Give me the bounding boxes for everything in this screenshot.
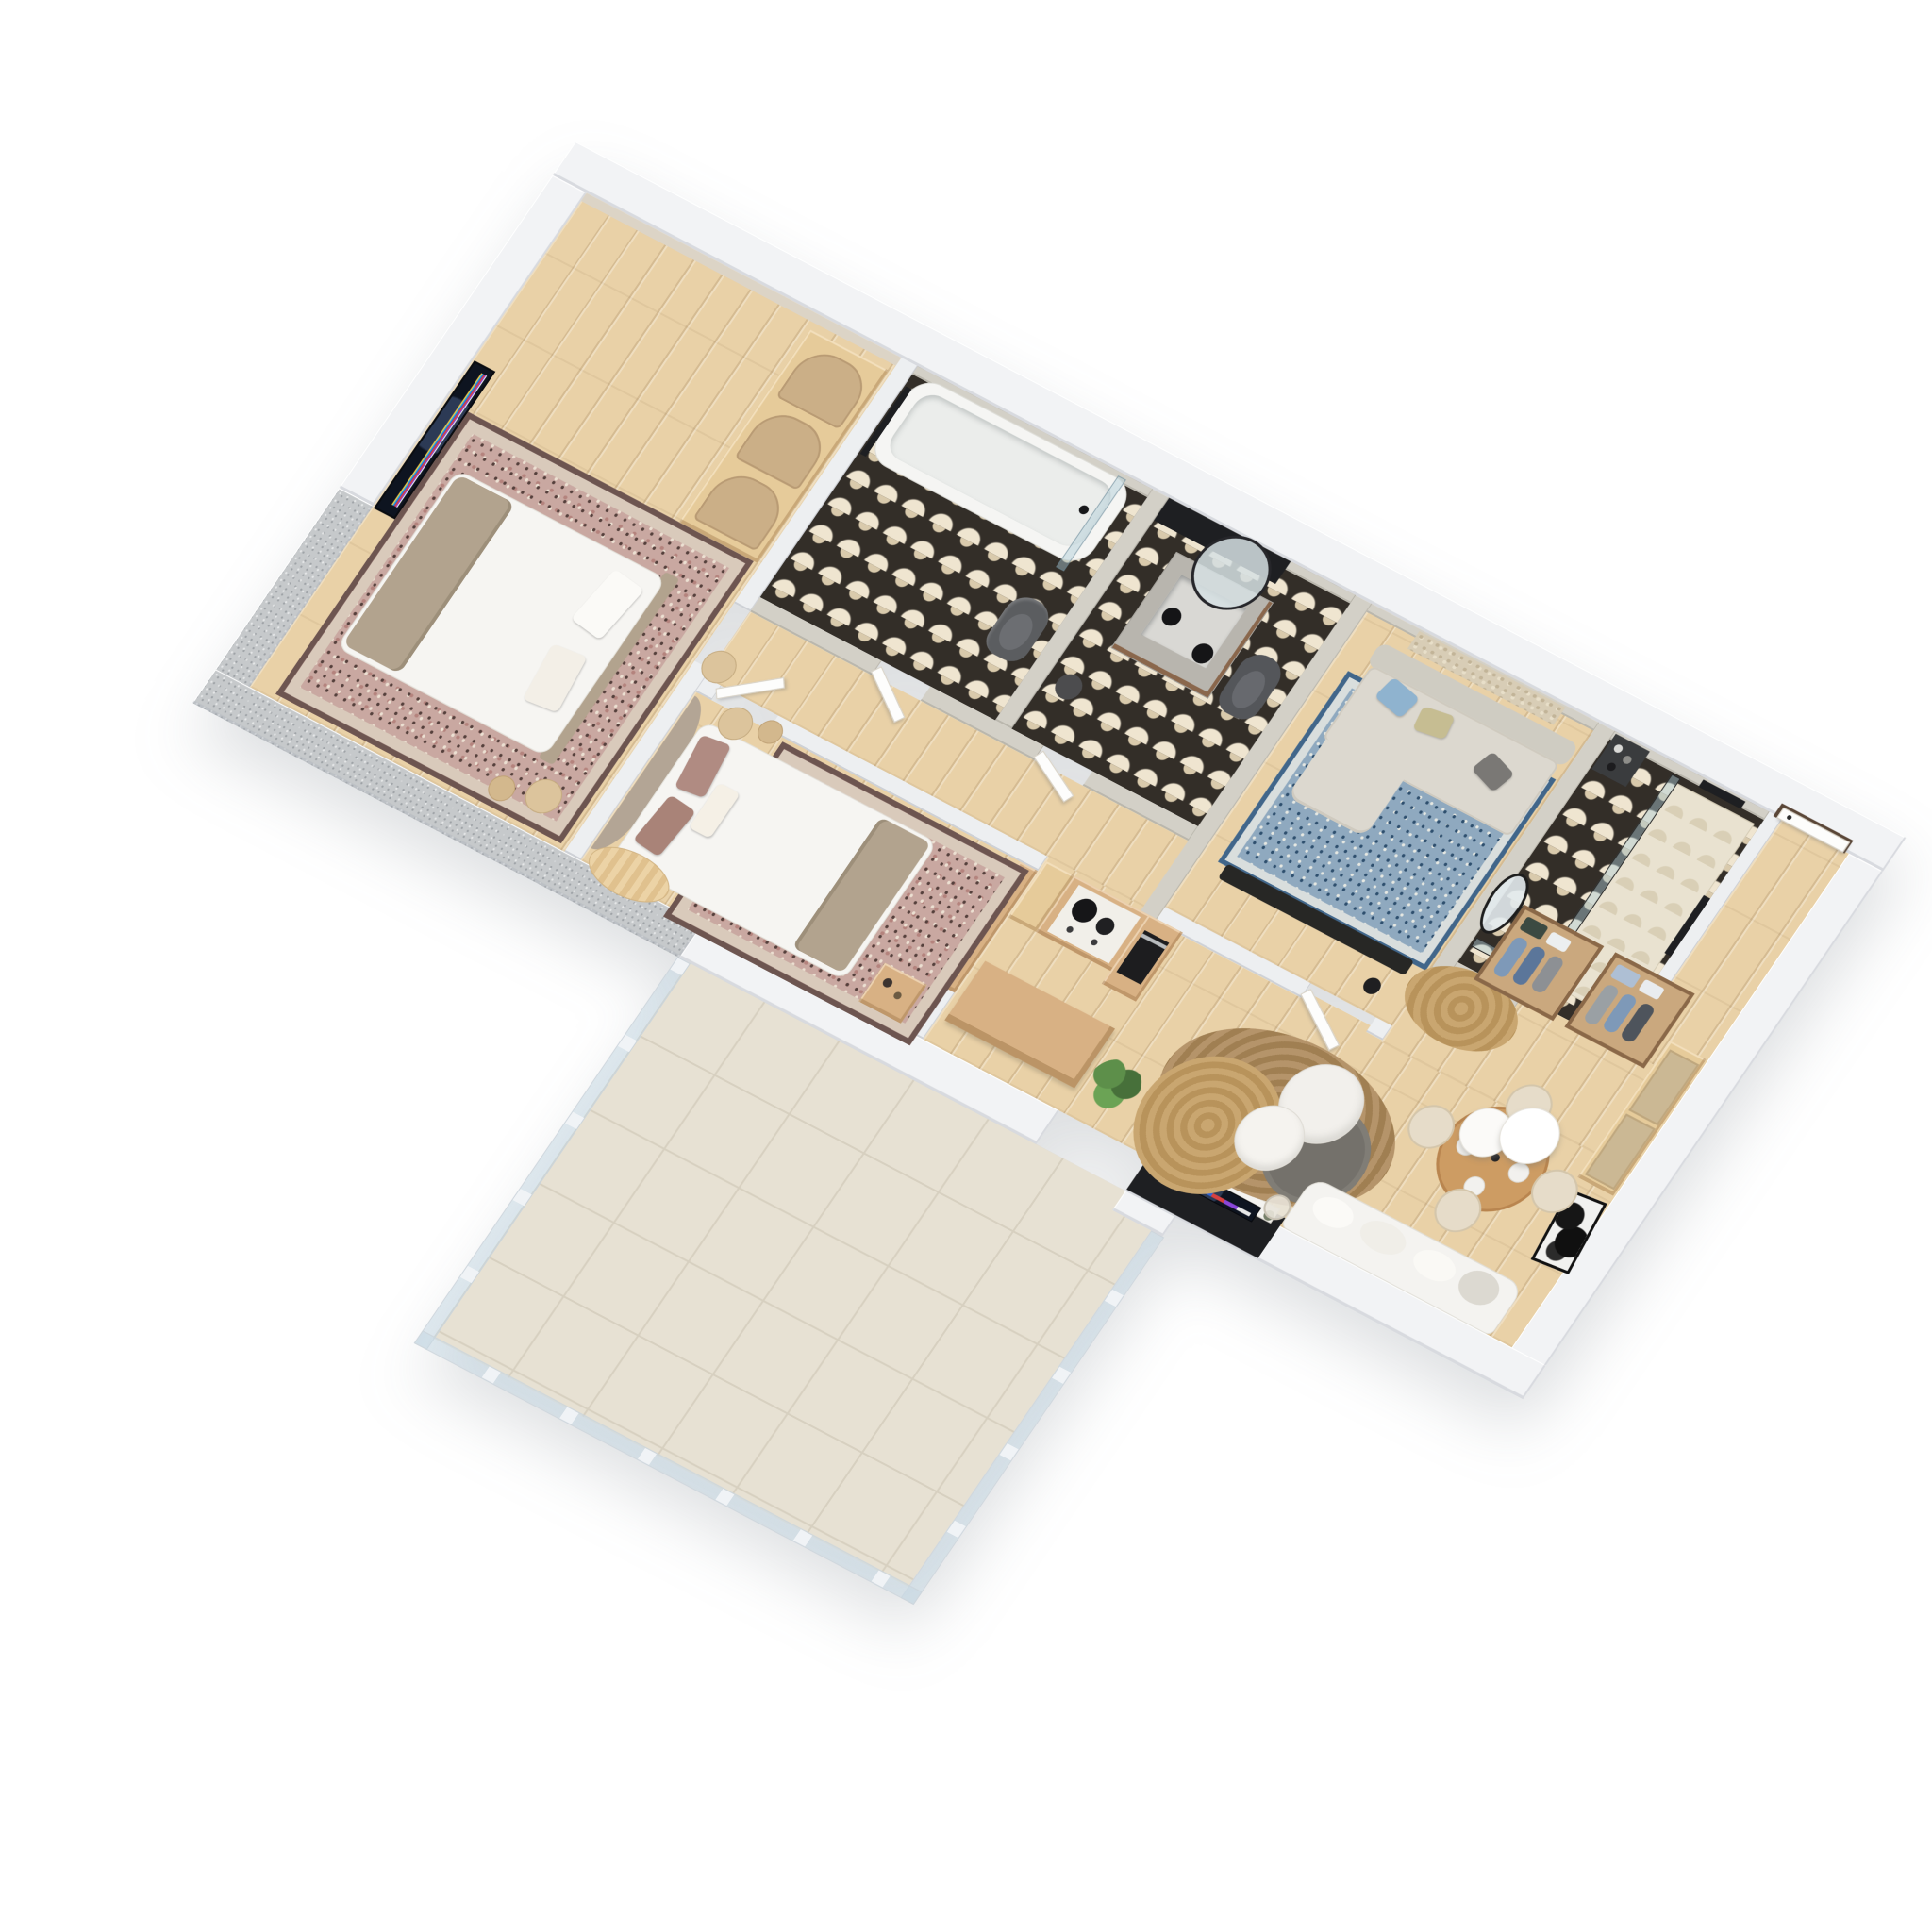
nightstand-decanter-2 — [892, 991, 904, 1000]
apartment-isometric-plan — [0, 142, 1906, 1800]
sofa-cushion-1 — [1307, 1191, 1360, 1234]
rack1-folded-white — [1545, 931, 1573, 953]
toiletry-bottle-1 — [1612, 743, 1624, 755]
kitchen-pot-small — [1092, 915, 1118, 939]
sofa-cushion-3 — [1407, 1243, 1462, 1288]
rack2-box-white — [1638, 979, 1665, 1001]
toiletry-bottle-3 — [1606, 761, 1618, 773]
rack1-folded-green — [1519, 916, 1549, 940]
rack2-box-blue — [1609, 964, 1641, 989]
floorplan-canvas — [0, 0, 1932, 1932]
kitchen-burner-dot-2 — [1090, 938, 1099, 946]
entry-door-handle — [1786, 814, 1792, 821]
nightstand-decanter-1 — [881, 976, 894, 989]
toiletry-bottle-2 — [1621, 755, 1633, 766]
kitchen-burner-dot-1 — [1065, 925, 1074, 934]
